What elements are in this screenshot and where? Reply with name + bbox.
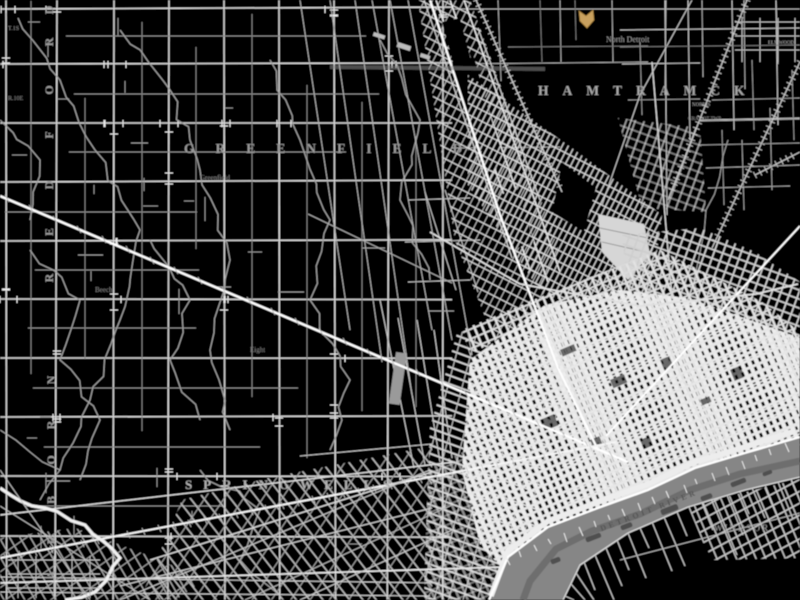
svg-text:North Detroit: North Detroit — [606, 35, 650, 44]
svg-text:GREENFIELD: GREENFIELD — [184, 141, 483, 156]
svg-text:D: D — [42, 180, 56, 189]
svg-text:R: R — [42, 37, 56, 46]
svg-text:Greenfield: Greenfield — [200, 174, 230, 182]
svg-text:A: A — [44, 570, 58, 579]
svg-text:Eight: Eight — [250, 346, 265, 354]
svg-text:WINDSOR: WINDSOR — [714, 523, 770, 533]
svg-text:E: E — [42, 228, 56, 236]
svg-text:HAMTRAMCK: HAMTRAMCK — [538, 83, 759, 98]
svg-text:T.1S: T.1S — [8, 26, 19, 32]
svg-text:GRATIOT TWP: GRATIOT TWP — [688, 117, 721, 122]
svg-text:Beech: Beech — [95, 286, 113, 294]
svg-text:R.10E: R.10E — [8, 96, 24, 102]
svg-text:O: O — [42, 85, 56, 94]
svg-text:R: R — [44, 535, 58, 544]
svg-text:D: D — [42, 5, 56, 14]
svg-text:F: F — [42, 131, 56, 138]
svg-text:R: R — [42, 273, 56, 282]
svg-text:B: B — [44, 496, 58, 504]
svg-text:NORRIS: NORRIS — [692, 103, 711, 108]
svg-text:N: N — [44, 375, 58, 384]
svg-text:SPRINGWELLS: SPRINGWELLS — [185, 477, 401, 492]
svg-text:O: O — [44, 455, 58, 464]
svg-text:R: R — [44, 420, 58, 429]
